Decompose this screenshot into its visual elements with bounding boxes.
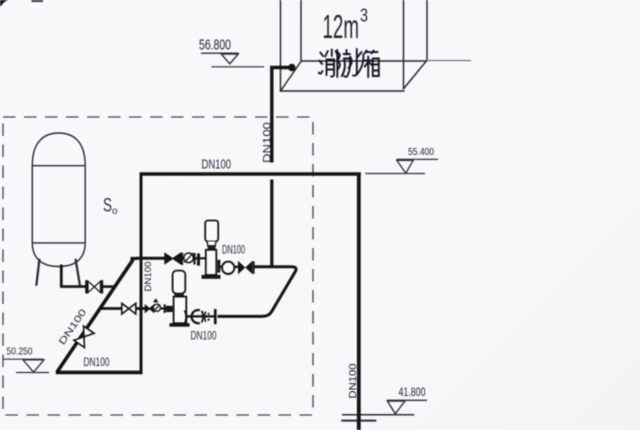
svg-text:DN100: DN100 <box>143 262 154 292</box>
svg-text:DN100: DN100 <box>84 357 110 369</box>
svg-text:DN100: DN100 <box>191 331 217 343</box>
svg-text:S: S <box>103 196 112 217</box>
svg-text:41.800: 41.800 <box>399 385 426 399</box>
svg-text:DN100: DN100 <box>202 157 232 172</box>
svg-text:50.250: 50.250 <box>7 346 33 358</box>
svg-text:DN100: DN100 <box>261 122 273 163</box>
svg-text:DN100: DN100 <box>222 243 245 257</box>
svg-text:12m: 12m <box>323 8 360 45</box>
svg-text:o: o <box>112 206 118 217</box>
svg-text:55.400: 55.400 <box>408 147 434 158</box>
svg-text:3: 3 <box>360 6 368 26</box>
svg-text:56.800: 56.800 <box>199 38 231 54</box>
svg-text:DN100: DN100 <box>348 363 359 398</box>
